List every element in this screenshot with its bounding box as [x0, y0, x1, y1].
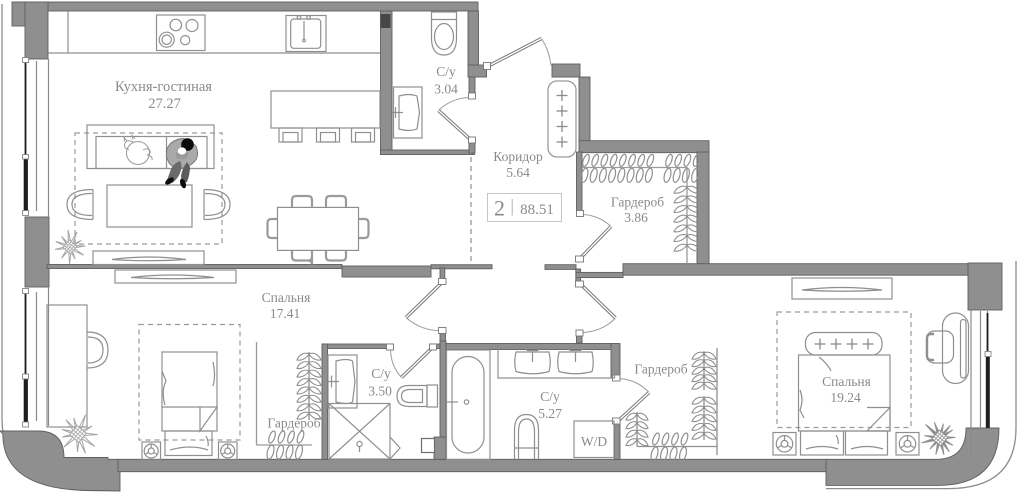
- svg-text:3.04: 3.04: [434, 82, 458, 97]
- svg-text:Гардероб: Гардероб: [267, 416, 320, 431]
- svg-text:5.64: 5.64: [506, 165, 530, 180]
- svg-text:5.27: 5.27: [538, 406, 562, 421]
- svg-text:Спальня: Спальня: [262, 290, 311, 305]
- svg-text:17.41: 17.41: [270, 306, 300, 321]
- svg-text:27.27: 27.27: [148, 96, 181, 112]
- svg-text:Гардероб: Гардероб: [611, 195, 664, 210]
- svg-text:С/у: С/у: [436, 64, 456, 79]
- svg-text:Спальня: Спальня: [822, 374, 871, 389]
- svg-text:Кухня-гостиная: Кухня-гостиная: [115, 79, 212, 95]
- svg-text:Коридор: Коридор: [493, 149, 543, 164]
- svg-text:С/у: С/у: [371, 366, 391, 381]
- svg-text:W/D: W/D: [581, 434, 607, 449]
- svg-text:3.50: 3.50: [368, 384, 392, 399]
- svg-text:С/у: С/у: [540, 389, 560, 404]
- svg-text:2: 2: [494, 196, 505, 221]
- svg-text:Гардероб: Гардероб: [634, 362, 687, 377]
- svg-text:19.24: 19.24: [830, 390, 861, 405]
- svg-text:3.86: 3.86: [624, 210, 648, 225]
- svg-text:88.51: 88.51: [520, 202, 554, 218]
